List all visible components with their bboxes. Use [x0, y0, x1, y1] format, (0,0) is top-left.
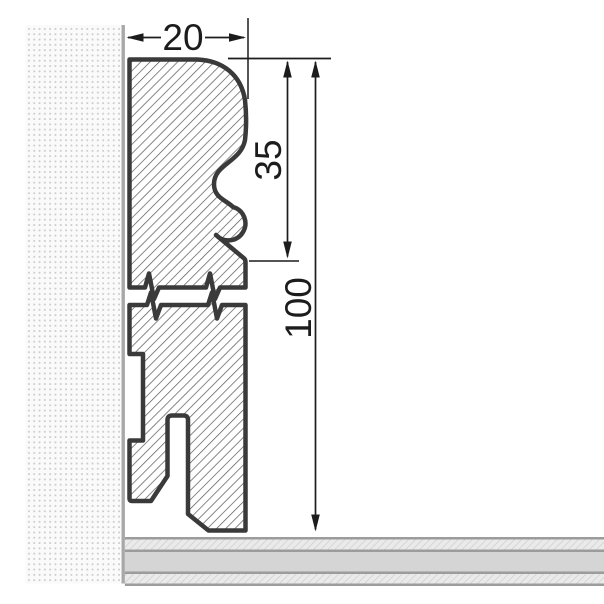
wall-face-line	[122, 25, 125, 584]
floor-middle-layer	[125, 552, 604, 572]
floor-top-border-line	[125, 537, 604, 540]
drawing-svg: 20 35 100	[0, 0, 604, 604]
dim-100-arrow-down	[311, 515, 320, 532]
floor-layers	[125, 537, 604, 586]
wall-surface-stipple	[26, 25, 121, 584]
dim-35-label: 35	[248, 139, 289, 180]
dim-20-arrow-left	[127, 33, 144, 42]
dim-20-label: 20	[162, 17, 203, 58]
dim-20-arrow-right	[229, 33, 246, 42]
dimension-profile-height-35: 35	[248, 61, 292, 259]
dim-100-label: 100	[278, 277, 319, 339]
floor-border-line	[125, 550, 604, 553]
floor-border-line-2	[125, 572, 604, 575]
floor-bottom-border-line	[125, 584, 604, 587]
dim-35-arrow-down	[283, 242, 292, 259]
floor-upper-hatched-layer	[125, 540, 604, 550]
skirting-lower-profile-section	[130, 293, 246, 531]
skirting-upper-profile-section	[130, 60, 247, 300]
wall	[26, 25, 125, 584]
technical-drawing-skirting-cross-section: 20 35 100	[0, 0, 604, 604]
dim-100-arrow-up	[311, 61, 320, 78]
dimension-total-height-100: 100	[278, 61, 320, 532]
dim-35-arrow-up	[283, 61, 292, 78]
floor-lower-hatched-layer	[125, 574, 604, 584]
dimension-width-20: 20	[127, 17, 247, 58]
